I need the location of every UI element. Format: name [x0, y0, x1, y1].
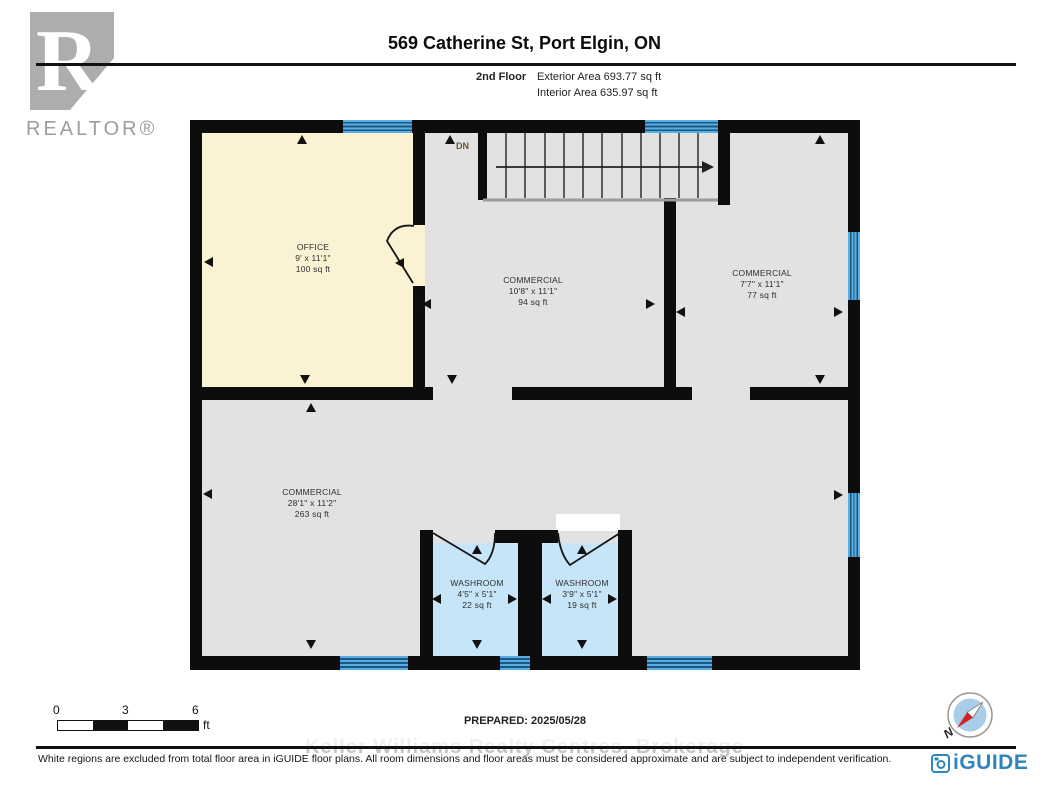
exterior-area: Exterior Area 693.77 sq ft: [537, 71, 661, 83]
dimension-arrow: [395, 258, 404, 268]
room-name: COMMERCIAL: [237, 487, 387, 498]
scale-segment: [58, 721, 93, 730]
washroom2-door-swing: [558, 533, 620, 565]
interior-area: Interior Area 635.97 sq ft: [537, 87, 657, 99]
dimension-arrow: [204, 257, 213, 267]
page-title: 569 Catherine St, Port Elgin, ON: [0, 33, 1049, 54]
dimension-arrow: [676, 307, 685, 317]
dimension-arrow: [646, 299, 655, 309]
dimension-arrow: [300, 375, 310, 384]
room-area: 19 sq ft: [507, 600, 657, 611]
scale-bar: [57, 720, 199, 731]
room-dims: 9' x 11'1": [238, 253, 388, 264]
prepared-date: PREPARED: 2025/05/28: [390, 715, 660, 727]
dimension-arrow: [203, 489, 212, 499]
stairs-down-label: DN: [456, 141, 469, 151]
scale-tick-3: 3: [122, 703, 129, 717]
scale-segment: [93, 721, 128, 730]
dimension-arrow: [577, 545, 587, 554]
dimension-arrow: [422, 299, 431, 309]
realtor-wordmark: REALTOR®: [26, 118, 157, 141]
room-name: COMMERCIAL: [458, 275, 608, 286]
footer-divider: [36, 746, 1016, 749]
floor-plan-page: R REALTOR® 569 Catherine St, Port Elgin,…: [0, 0, 1049, 811]
scale-segment: [163, 721, 198, 730]
realtor-logo: R: [30, 12, 114, 110]
scale-tick-6: 6: [192, 703, 199, 717]
dimension-arrow: [445, 135, 455, 144]
dimension-arrow: [447, 375, 457, 384]
dimension-arrow: [834, 490, 843, 500]
room-label-commercial-mid: COMMERCIAL 10'8" x 11'1" 94 sq ft: [458, 275, 608, 308]
scale-segment: [128, 721, 163, 730]
room-area: 263 sq ft: [237, 509, 387, 520]
room-area: 94 sq ft: [458, 297, 608, 308]
room-name: WASHROOM: [507, 578, 657, 589]
floor-label: 2nd Floor: [476, 71, 526, 83]
dimension-arrow: [608, 594, 617, 604]
room-label-commercial-right: COMMERCIAL 7'7" x 11'1" 77 sq ft: [687, 268, 837, 301]
room-label-washroom-2: WASHROOM 3'9" x 5'1" 19 sq ft: [507, 578, 657, 611]
scale-unit-label: ft: [203, 718, 210, 732]
stair-direction-arrowhead: [702, 161, 714, 173]
dimension-arrow: [472, 545, 482, 554]
iguide-camera-icon: [931, 754, 950, 773]
room-label-commercial-large: COMMERCIAL 28'1" x 11'2" 263 sq ft: [237, 487, 387, 520]
dimension-arrow: [815, 135, 825, 144]
dimension-arrow: [542, 594, 551, 604]
iguide-wordmark: iGUIDE: [953, 751, 1028, 775]
room-name: COMMERCIAL: [687, 268, 837, 279]
room-dims: 7'7" x 11'1": [687, 279, 837, 290]
iguide-logo: iGUIDE: [931, 751, 1028, 775]
title-divider: [36, 63, 1016, 66]
room-dims: 3'9" x 5'1": [507, 589, 657, 600]
room-name: OFFICE: [238, 242, 388, 253]
floor-plan: DN OFFICE 9' x 11'1" 100 sq ft COMMERCIA…: [190, 120, 860, 670]
room-dims: 10'8" x 11'1": [458, 286, 608, 297]
room-dims: 28'1" x 11'2": [237, 498, 387, 509]
room-area: 77 sq ft: [687, 290, 837, 301]
washroom1-door-swing: [433, 533, 495, 564]
watermark-cover: [250, 731, 800, 746]
scale-tick-0: 0: [53, 703, 60, 717]
dimension-arrow: [297, 135, 307, 144]
office-door-swing: [387, 226, 414, 283]
dimension-arrow: [577, 640, 587, 649]
dimension-arrow: [306, 403, 316, 412]
room-area: 100 sq ft: [238, 264, 388, 275]
dimension-arrow: [508, 594, 517, 604]
dimension-arrow: [432, 594, 441, 604]
dimension-arrow: [306, 640, 316, 649]
dimension-arrow: [834, 307, 843, 317]
stair-treads: [506, 133, 698, 198]
disclaimer-text: White regions are excluded from total fl…: [38, 753, 891, 765]
room-label-office: OFFICE 9' x 11'1" 100 sq ft: [238, 242, 388, 275]
dimension-arrow: [472, 640, 482, 649]
dimension-arrow: [815, 375, 825, 384]
